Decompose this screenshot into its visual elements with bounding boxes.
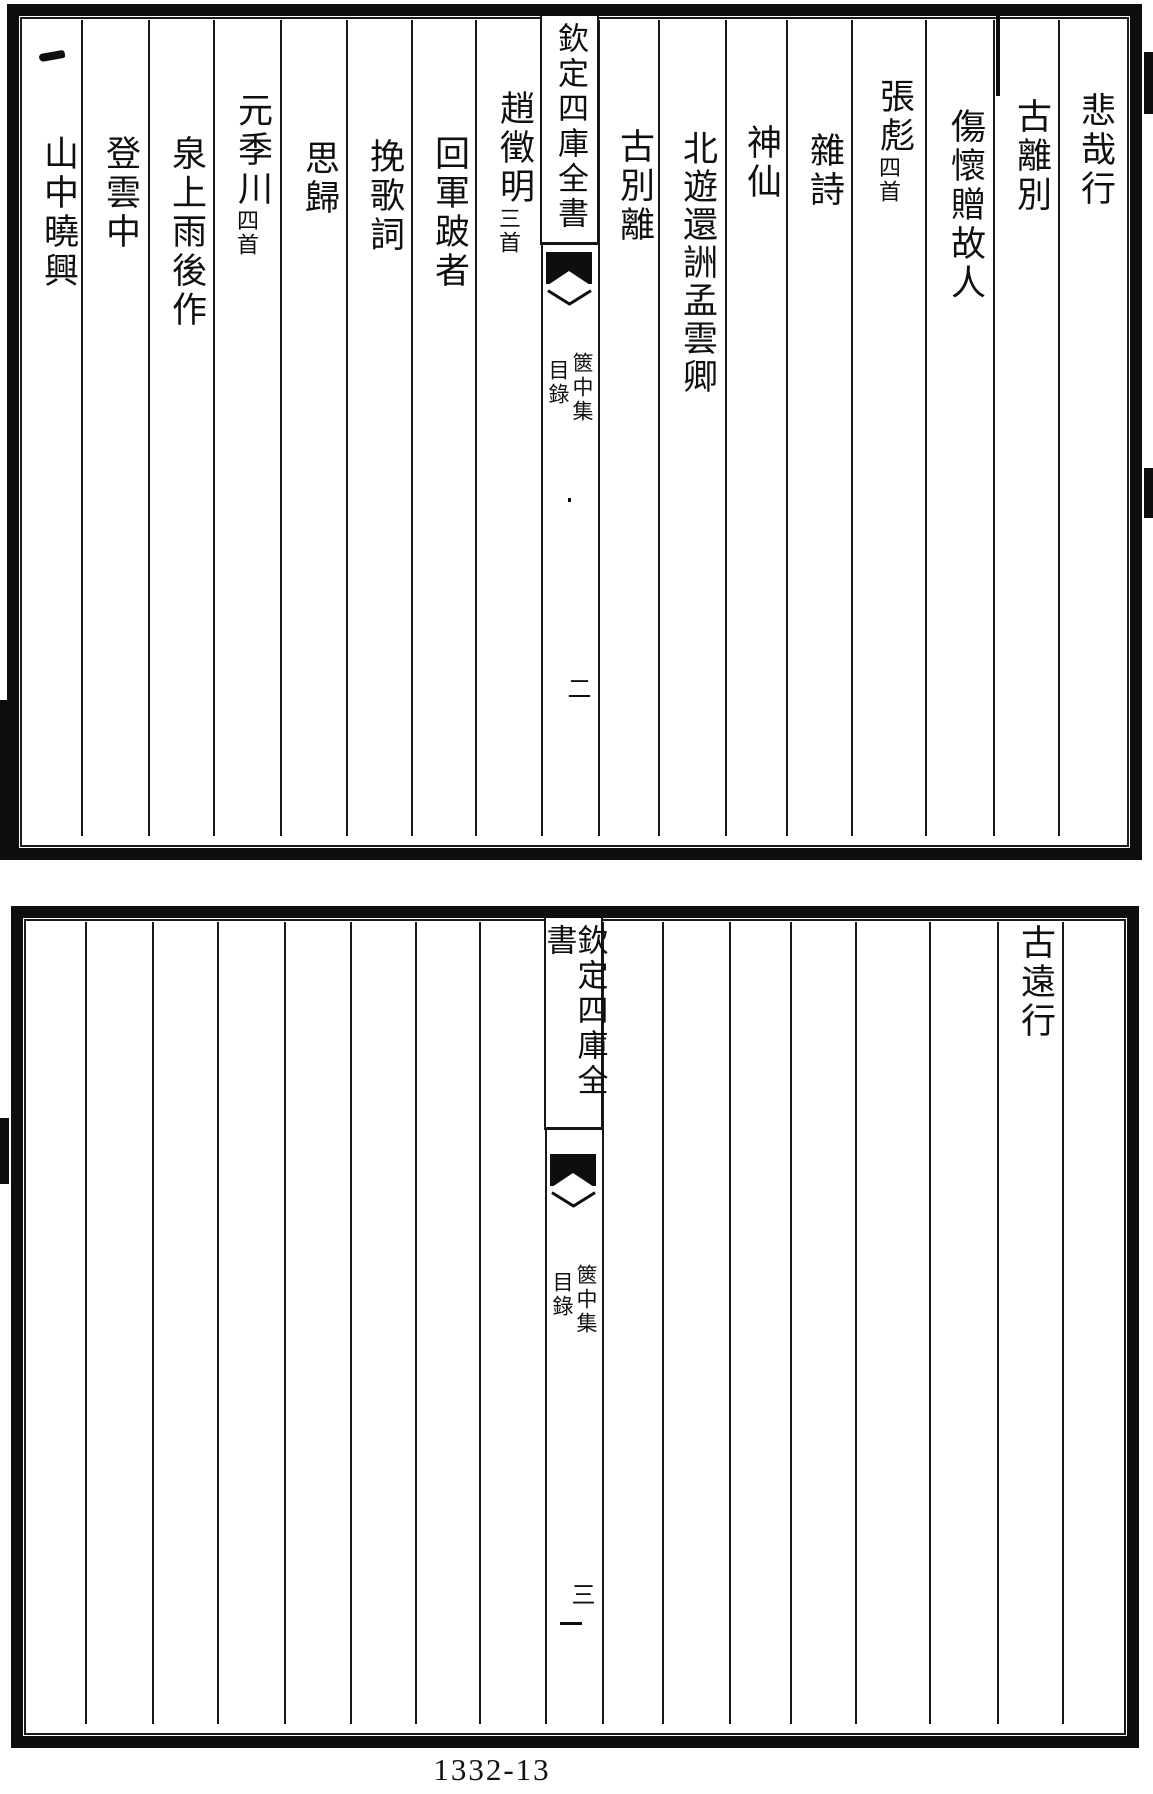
imperial-banner-title: 欽定四庫全書	[554, 16, 585, 242]
fish-tail-chevron	[568, 289, 592, 305]
toc-entry-title: 挽歌詞	[364, 138, 404, 255]
ink-dot	[568, 498, 571, 502]
catalog-number-label: 1332-13	[372, 1752, 612, 1788]
section-title: 目錄	[547, 359, 568, 424]
section-title: 目錄	[551, 1271, 572, 1336]
toc-entry-author: 元季川四首	[223, 92, 269, 257]
ink-bleed-mark	[1144, 468, 1153, 518]
ink-stray-stroke	[560, 1622, 582, 1625]
toc-entry: 雜詩	[795, 132, 841, 210]
column-grid-bottom: 古遠行 欽定四庫全書 篋中集 目錄 三	[27, 922, 1125, 1724]
poem-title: 古遠行	[1006, 924, 1052, 1041]
toc-entry-title: 雜詩	[804, 132, 844, 210]
toc-entry-count-note: 四首	[875, 156, 900, 204]
poem-title-text: 古遠行	[1015, 924, 1055, 1041]
column-rule	[725, 20, 727, 836]
toc-entry: 神仙	[732, 124, 778, 202]
column-rule	[929, 922, 931, 1724]
column-rule	[350, 922, 352, 1724]
column-rule	[729, 922, 731, 1724]
toc-entry-title: 古離別	[1011, 98, 1051, 215]
toc-entry-title: 張彪	[874, 78, 914, 156]
column-rule	[411, 20, 413, 836]
column-rule	[152, 922, 154, 1724]
toc-entry-title: 山中曉興	[38, 135, 78, 291]
toc-entry-title: 趙徵明	[494, 90, 534, 207]
toc-entry: 回軍跛者	[420, 135, 466, 291]
toc-entry: 北遊還詶孟雲卿	[668, 130, 714, 396]
column-rule	[855, 922, 857, 1724]
scanned-page-top: 悲哉行 古離別 傷懷贈故人 張彪四首 雜詩 神仙 北遊還詶孟雲卿 古別離 趙徵明…	[7, 4, 1142, 860]
toc-entry-title: 古別離	[614, 128, 654, 245]
toc-entry: 傷懷贈故人	[936, 108, 982, 303]
toc-entry: 山中曉興	[29, 135, 75, 291]
toc-entry-title: 登雲中	[100, 135, 140, 252]
book-title: 篋中集	[575, 1264, 596, 1336]
ink-bleed-mark	[0, 1118, 9, 1184]
column-rule	[658, 20, 660, 836]
column-rule	[997, 922, 999, 1724]
fish-tail-chevron	[572, 1191, 596, 1207]
toc-entry: 古別離	[605, 128, 651, 245]
column-rule	[415, 922, 417, 1724]
toc-entry-title: 悲哉行	[1075, 92, 1115, 209]
toc-entry-author: 趙徵明三首	[485, 90, 531, 255]
column-rule	[217, 922, 219, 1724]
toc-entry: 登雲中	[91, 135, 137, 252]
column-rule	[280, 20, 282, 836]
column-grid-top: 悲哉行 古離別 傷懷贈故人 張彪四首 雜詩 神仙 北遊還詶孟雲卿 古別離 趙徵明…	[23, 20, 1121, 836]
column-rule	[786, 20, 788, 836]
column-rule	[85, 922, 87, 1724]
toc-entry: 悲哉行	[1066, 92, 1112, 209]
toc-entry-title: 回軍跛者	[429, 135, 469, 291]
column-rule	[479, 922, 481, 1724]
toc-entry-title: 思歸	[299, 140, 339, 218]
toc-entry: 思歸	[290, 140, 336, 218]
toc-entry: 泉上雨後作	[157, 135, 203, 330]
column-rule	[1058, 20, 1060, 836]
toc-entry: 古離別	[1002, 98, 1048, 215]
toc-entry-title: 泉上雨後作	[166, 135, 206, 330]
column-rule	[213, 20, 215, 836]
center-column-labels: 篋中集 目錄	[545, 1264, 602, 1336]
toc-entry: 挽歌詞	[355, 138, 401, 255]
center-column-labels: 篋中集 目錄	[541, 352, 598, 424]
ink-bleed-mark	[0, 700, 7, 860]
toc-entry-title: 傷懷贈故人	[945, 108, 985, 303]
column-rule	[925, 20, 927, 836]
fish-tail-ornament	[550, 1154, 596, 1186]
toc-entry-title: 元季川	[232, 92, 272, 209]
toc-entry-title: 北遊還詶孟雲卿	[677, 130, 717, 396]
folio-number: 三	[565, 1582, 593, 1606]
toc-entry-author: 張彪四首	[865, 78, 911, 204]
column-rule	[475, 20, 477, 836]
brush-dash-mark	[39, 50, 66, 62]
toc-entry-title: 神仙	[741, 124, 781, 202]
imperial-banner-title: 欽定四庫全書	[543, 918, 605, 1127]
column-rule	[662, 922, 664, 1724]
column-rule	[148, 20, 150, 836]
folio-number: 二	[561, 676, 589, 700]
imperial-banner-box: 欽定四庫全書	[540, 16, 599, 245]
toc-entry-count-note: 三首	[495, 207, 520, 255]
column-rule	[790, 922, 792, 1724]
ink-bleed-mark	[1144, 52, 1153, 114]
column-rule	[1062, 922, 1064, 1724]
fish-tail-ornament	[546, 252, 592, 284]
toc-entry-count-note: 四首	[233, 209, 258, 257]
book-title: 篋中集	[571, 352, 592, 424]
column-rule	[284, 922, 286, 1724]
column-rule	[346, 20, 348, 836]
ink-bleed-mark	[996, 8, 1000, 96]
column-rule	[81, 20, 83, 836]
imperial-banner-box: 欽定四庫全書	[544, 918, 603, 1130]
column-rule	[851, 20, 853, 836]
column-rule	[993, 20, 995, 836]
